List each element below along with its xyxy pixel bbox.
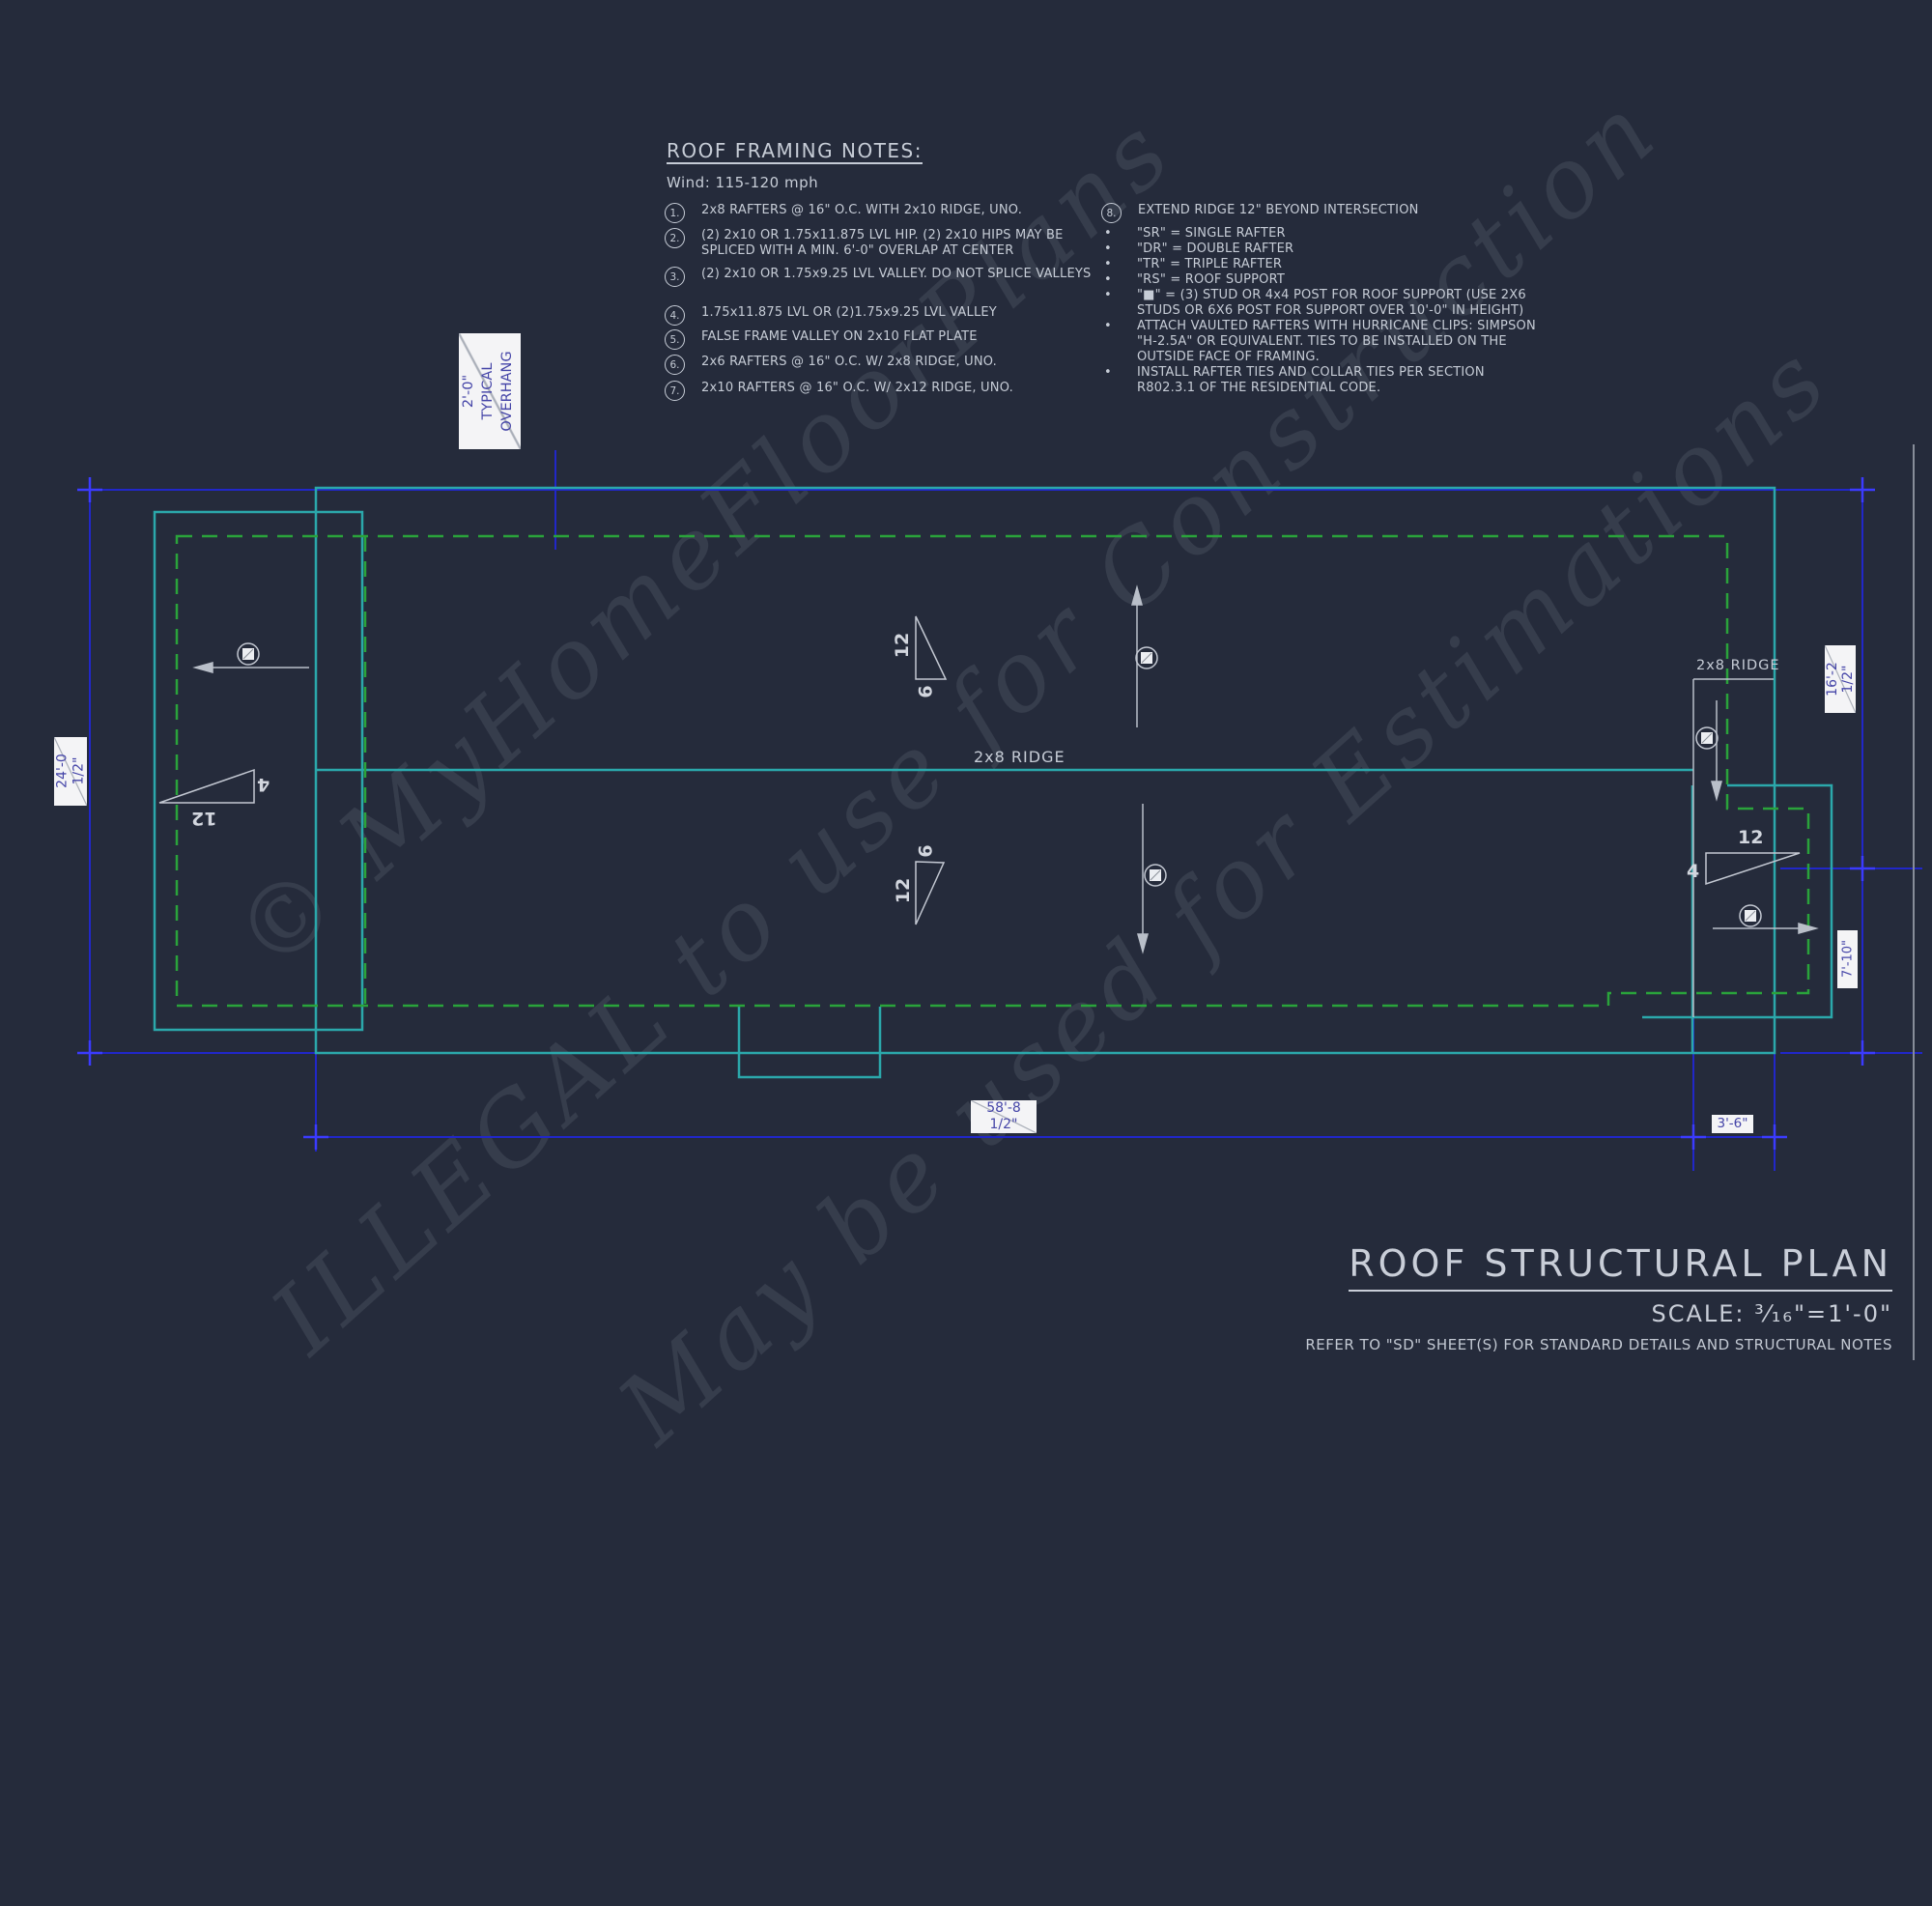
slope-triangle-mid-lower	[916, 862, 944, 925]
note-number-circle: 7.	[665, 381, 685, 401]
legend-item: •"RS" = ROOF SUPPORT	[1104, 272, 1543, 288]
dimension-label-24-0-half: 24'-0 1/2"	[54, 737, 87, 806]
roof-structural-plan-sheet: { "notes": { "title": "ROOF FRAMING NOTE…	[0, 0, 1932, 1449]
note-item-4: 4. 1.75x11.875 LVL OR (2)1.75x9.25 LVL V…	[665, 305, 1117, 326]
slope-right-run: 12	[1738, 827, 1763, 848]
dimension-label-16-2-half: 16'-2 1/2"	[1825, 645, 1856, 713]
bullet-icon: •	[1104, 319, 1137, 365]
dimension-label-7-10: 7'-10"	[1837, 930, 1858, 988]
note-text: (2) 2x10 OR 1.75x11.875 LVL HIP. (2) 2x1…	[701, 228, 1117, 259]
slope-mid-lower-run: 12	[893, 878, 914, 903]
sheet-title: ROOF STRUCTURAL PLAN	[1349, 1242, 1892, 1292]
slope-left-run: 12	[191, 808, 216, 829]
notes-wind: Wind: 115-120 mph	[667, 174, 818, 191]
note-text: 2x10 RAFTERS @ 16" O.C. W/ 2x12 RIDGE, U…	[701, 381, 1117, 401]
note-item-6: 6. 2x6 RAFTERS @ 16" O.C. W/ 2x8 RIDGE, …	[665, 355, 1117, 375]
bullet-icon: •	[1104, 257, 1137, 272]
slope-left-rise: 4	[257, 774, 270, 795]
slope-right-rise: 4	[1687, 861, 1699, 882]
note-item-2: 2. (2) 2x10 OR 1.75x11.875 LVL HIP. (2) …	[665, 228, 1117, 259]
legend-item: •"TR" = TRIPLE RAFTER	[1104, 257, 1543, 272]
slope-mid-upper-run: 12	[892, 633, 913, 658]
bullet-icon: •	[1104, 272, 1137, 288]
slope-triangle-mid-upper	[916, 616, 946, 679]
dimension-label-58-8-half: 58'-8 1/2"	[971, 1100, 1037, 1133]
note-number-circle: 5.	[665, 329, 685, 350]
bullet-icon: •	[1104, 226, 1137, 242]
note-text: 1.75x11.875 LVL OR (2)1.75x9.25 LVL VALL…	[701, 305, 1117, 326]
dimension-lines	[90, 450, 1922, 1171]
note-number-circle: 2.	[665, 228, 685, 248]
note-text: (2) 2x10 OR 1.75x9.25 LVL VALLEY. DO NOT…	[701, 267, 1117, 287]
slope-mid-upper-rise: 6	[916, 685, 937, 697]
roof-support-symbols	[238, 643, 1761, 926]
title-block: ROOF STRUCTURAL PLAN SCALE: ³⁄₁₆"=1'-0" …	[1305, 1242, 1892, 1353]
legend-item: •"■" = (3) STUD OR 4x4 POST FOR ROOF SUP…	[1104, 288, 1543, 319]
legend-item: •"DR" = DOUBLE RAFTER	[1104, 242, 1543, 257]
legend-item: •"SR" = SINGLE RAFTER	[1104, 226, 1543, 242]
legend-item: •ATTACH VAULTED RAFTERS WITH HURRICANE C…	[1104, 319, 1543, 365]
note-number-circle: 1.	[665, 203, 685, 223]
bottom-bumpout-outline	[739, 1007, 880, 1077]
note-text: 2x8 RAFTERS @ 16" O.C. WITH 2x10 RIDGE, …	[701, 203, 1117, 223]
right-ridge-label: 2x8 RIDGE	[1696, 658, 1780, 673]
right-ridge-lines	[1693, 679, 1774, 1017]
dimension-label-3-6: 3'-6"	[1712, 1115, 1753, 1133]
note-text: FALSE FRAME VALLEY ON 2x10 FLAT PLATE	[701, 329, 1117, 350]
dimension-ticks	[77, 477, 1875, 1150]
bullet-icon: •	[1104, 288, 1137, 319]
note-text: EXTEND RIDGE 12" BEYOND INTERSECTION	[1138, 203, 1553, 223]
roof-support-symbol	[1145, 865, 1166, 886]
overhang-dimension-label: 2'-0" TYPICAL OVERHANG	[459, 333, 521, 449]
note-item-3: 3. (2) 2x10 OR 1.75x9.25 LVL VALLEY. DO …	[665, 267, 1117, 287]
slope-mid-lower-rise: 6	[916, 844, 937, 857]
note-number-circle: 4.	[665, 305, 685, 326]
note-item-7: 7. 2x10 RAFTERS @ 16" O.C. W/ 2x12 RIDGE…	[665, 381, 1117, 401]
note-text: 2x6 RAFTERS @ 16" O.C. W/ 2x8 RIDGE, UNO…	[701, 355, 1117, 375]
bullet-icon: •	[1104, 365, 1137, 396]
legend-item: •INSTALL RAFTER TIES AND COLLAR TIES PER…	[1104, 365, 1543, 396]
roof-support-symbol	[238, 643, 259, 665]
roof-outlines	[155, 488, 1832, 1077]
bullet-icon: •	[1104, 242, 1137, 257]
notes-title: ROOF FRAMING NOTES:	[667, 139, 923, 162]
note-item-1: 1. 2x8 RAFTERS @ 16" O.C. WITH 2x10 RIDG…	[665, 203, 1117, 223]
roof-support-symbol	[1696, 727, 1718, 749]
note-item-8: 8. EXTEND RIDGE 12" BEYOND INTERSECTION	[1101, 203, 1553, 223]
note-number-circle: 3.	[665, 267, 685, 287]
right-wing-roof-outline	[1642, 785, 1832, 1017]
main-ridge-label: 2x8 RIDGE	[974, 748, 1065, 766]
legend-bullet-list: •"SR" = SINGLE RAFTER •"DR" = DOUBLE RAF…	[1104, 226, 1543, 396]
note-number-circle: 8.	[1101, 203, 1122, 223]
roof-support-symbol	[1136, 647, 1157, 669]
note-item-5: 5. FALSE FRAME VALLEY ON 2x10 FLAT PLATE	[665, 329, 1117, 350]
sheet-reference-note: REFER TO "SD" SHEET(S) FOR STANDARD DETA…	[1305, 1336, 1892, 1353]
slope-triangle-left	[159, 770, 254, 803]
sheet-scale: SCALE: ³⁄₁₆"=1'-0"	[1651, 1300, 1892, 1327]
note-number-circle: 6.	[665, 355, 685, 375]
roof-support-symbol	[1740, 905, 1761, 926]
